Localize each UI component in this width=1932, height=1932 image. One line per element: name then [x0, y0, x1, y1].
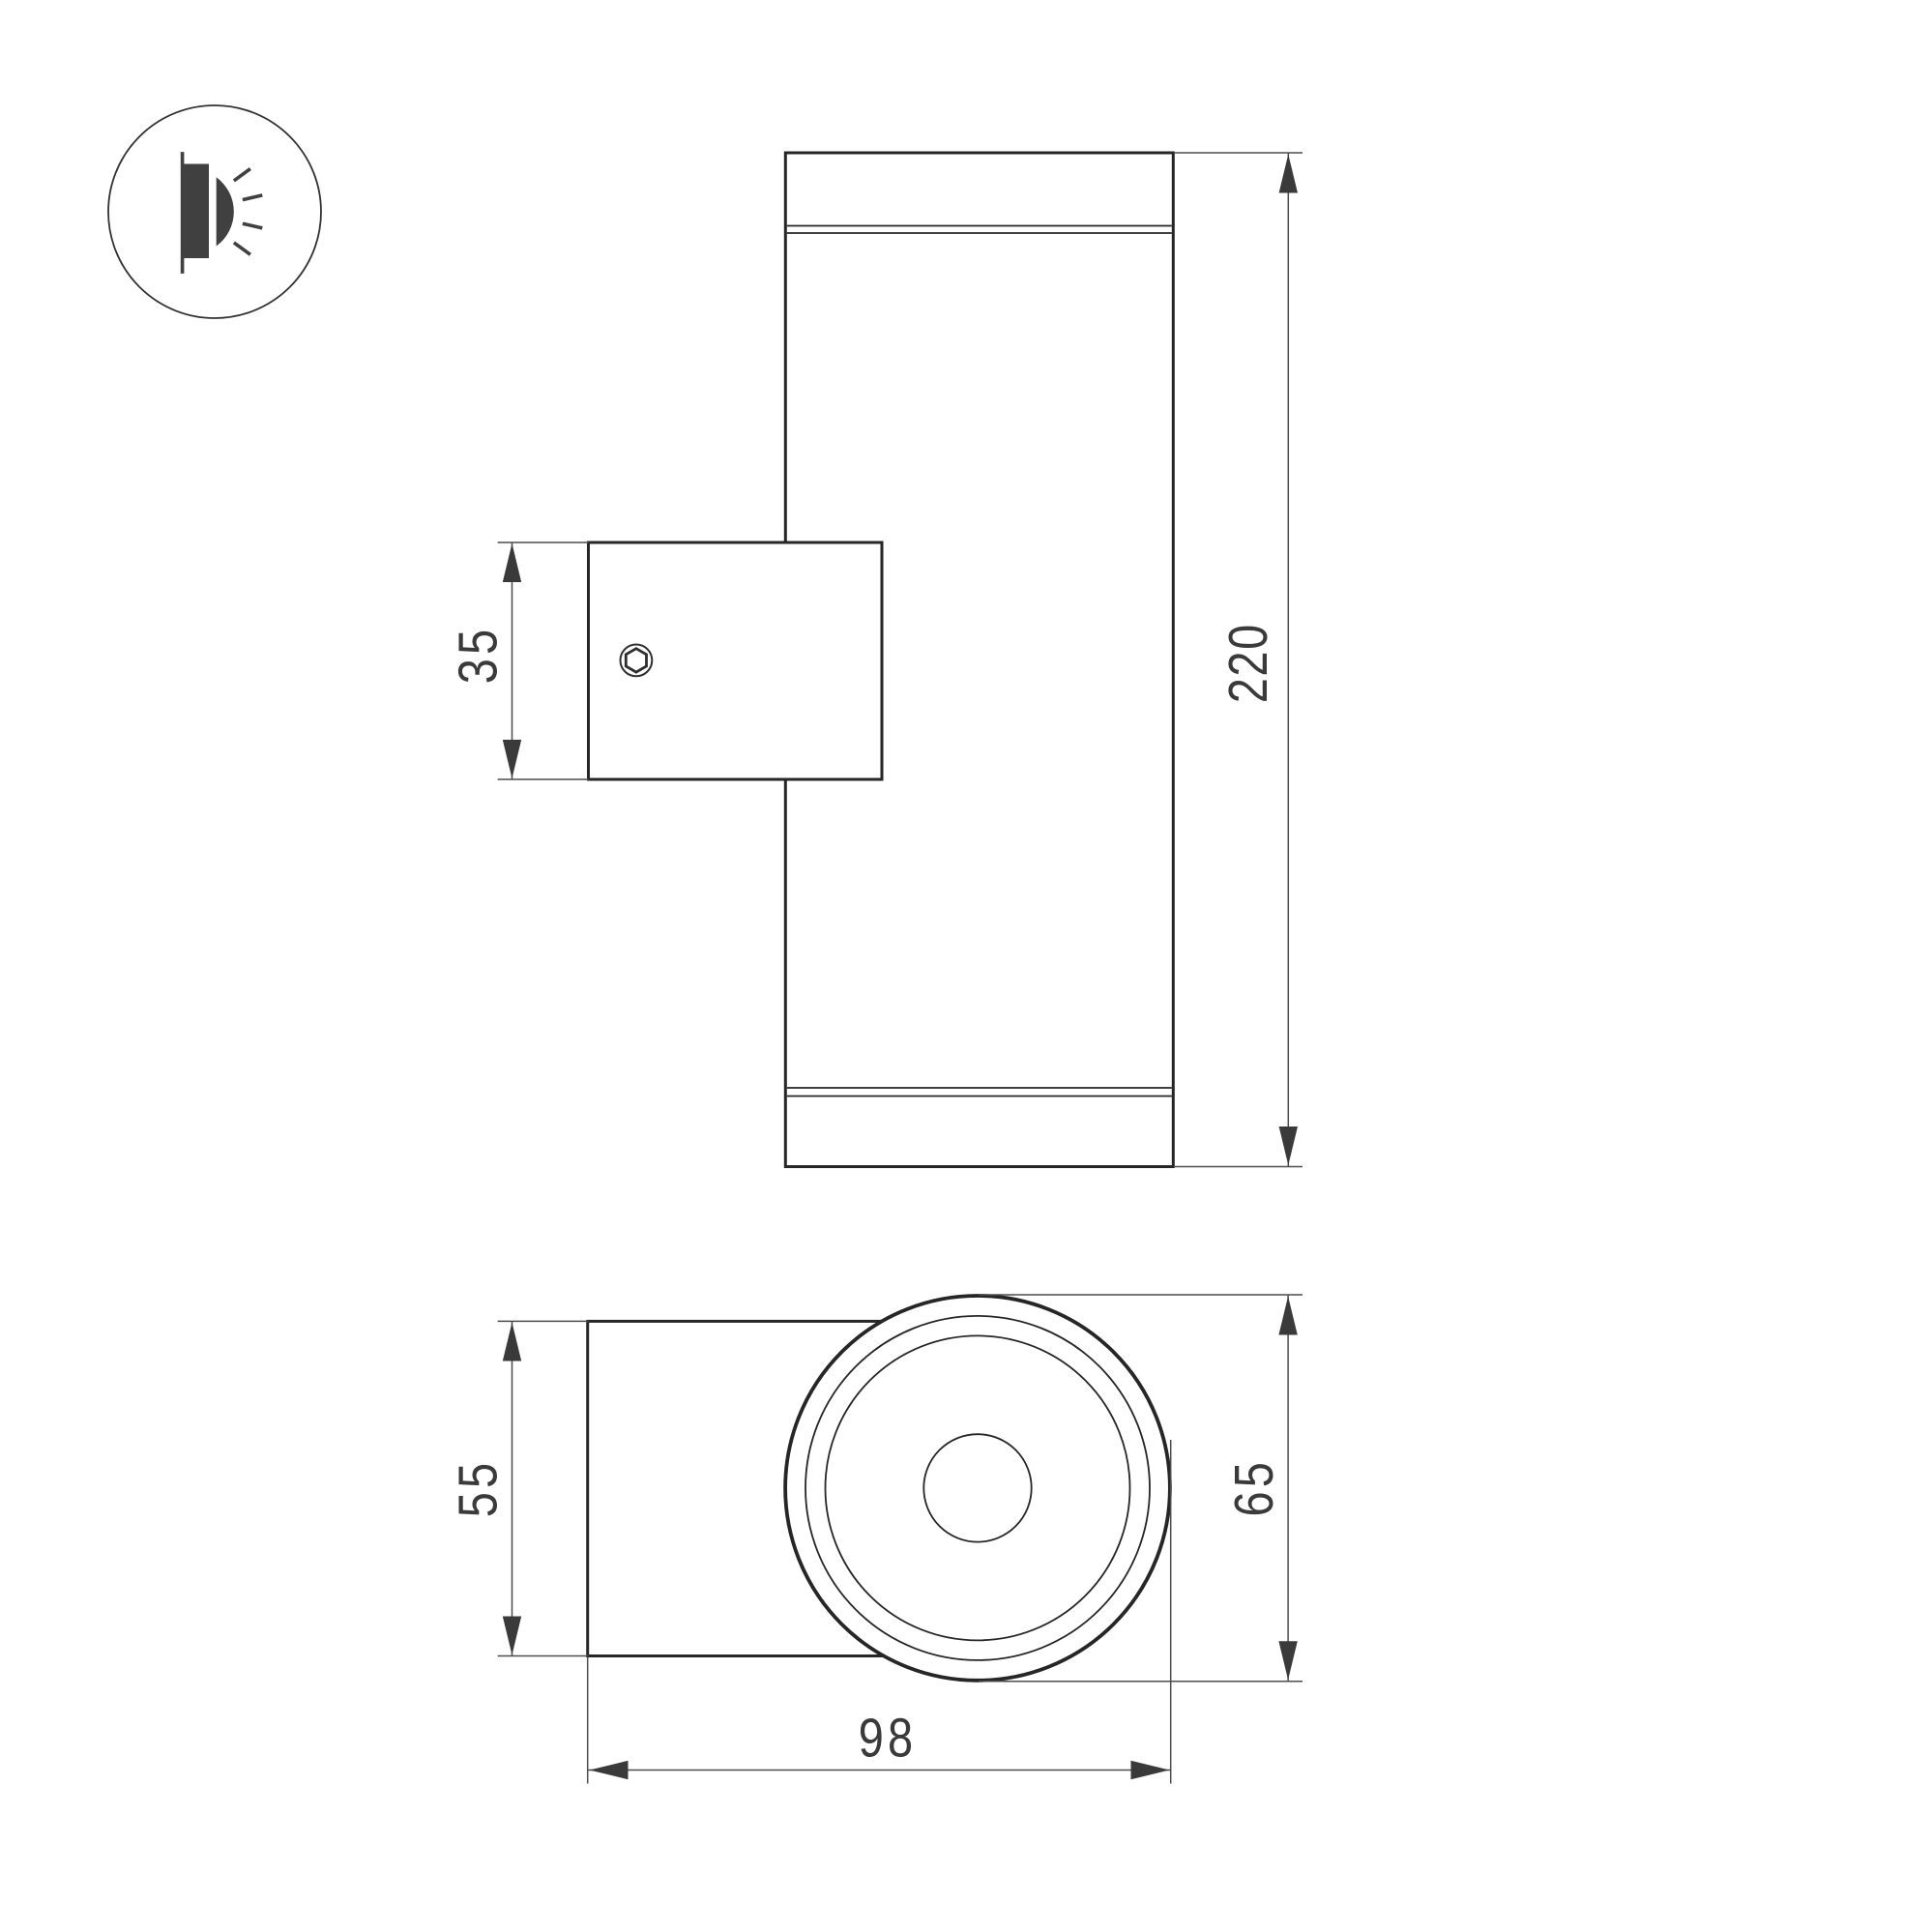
- svg-text:98: 98: [859, 1709, 917, 1770]
- svg-text:35: 35: [448, 626, 509, 684]
- svg-text:65: 65: [1224, 1458, 1285, 1516]
- svg-text:55: 55: [448, 1459, 509, 1517]
- svg-text:220: 220: [1218, 623, 1279, 703]
